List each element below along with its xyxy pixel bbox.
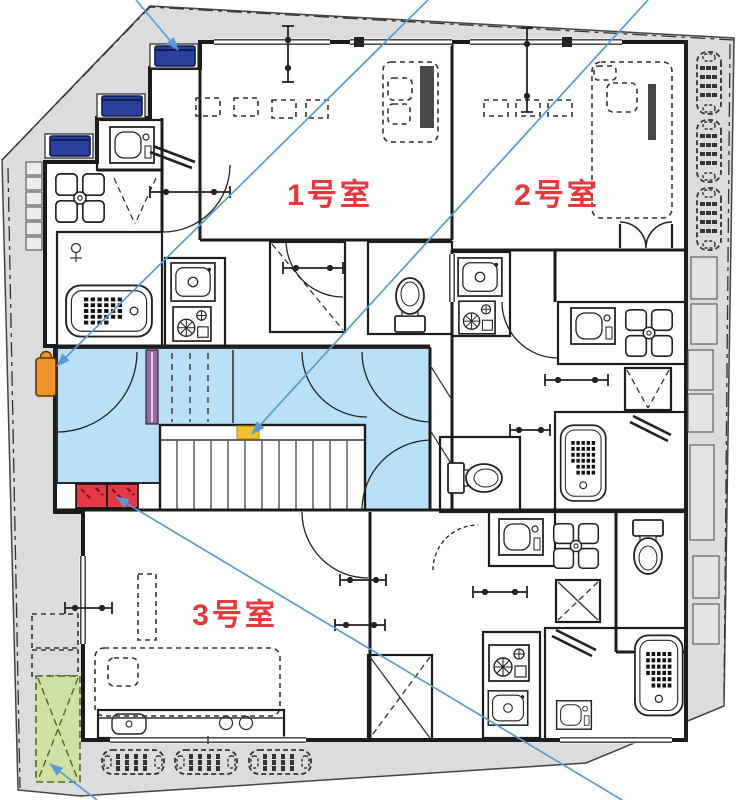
stair-marker bbox=[237, 426, 259, 439]
ac-unit bbox=[690, 445, 714, 540]
room-2-label: 2号室 bbox=[514, 178, 600, 212]
stove-icon bbox=[173, 307, 211, 341]
kitchen-sink-icon bbox=[171, 263, 215, 301]
ac-unit bbox=[691, 304, 717, 344]
floor-plan-figure: 1号室 2号室 3号室 bbox=[0, 0, 737, 800]
stove-icon bbox=[459, 301, 495, 334]
ac-unit bbox=[693, 556, 719, 598]
planting-area-green bbox=[36, 676, 80, 782]
room-1-label: 1号室 bbox=[287, 178, 373, 212]
toilet-icon bbox=[395, 278, 425, 332]
ac-unit bbox=[688, 350, 713, 390]
room-3-label: 3号室 bbox=[192, 598, 278, 632]
wall-post bbox=[562, 37, 572, 47]
toilet-icon bbox=[633, 520, 663, 574]
ac-unit bbox=[688, 394, 713, 432]
bathtub-icon bbox=[66, 285, 152, 336]
toilet-icon bbox=[448, 463, 502, 493]
ac-unit bbox=[693, 604, 719, 644]
vanity-basin-icon bbox=[110, 127, 154, 163]
sink-bowl-room3 bbox=[112, 714, 146, 734]
wall-post bbox=[354, 37, 364, 47]
bathtub-icon bbox=[561, 425, 606, 501]
vanity-basin-icon bbox=[557, 701, 592, 729]
entrance-box-red bbox=[76, 484, 107, 508]
vanity-basin-icon bbox=[571, 308, 615, 344]
wardrobe-room1 bbox=[420, 66, 434, 128]
vanity-basin-icon bbox=[499, 519, 543, 555]
kitchen-sink-icon bbox=[458, 258, 502, 296]
bathtub-icon bbox=[635, 635, 683, 715]
ac-unit bbox=[691, 257, 717, 299]
staircase bbox=[160, 425, 365, 510]
kitchen-sink-icon bbox=[488, 691, 527, 725]
water-heater-orange bbox=[36, 358, 56, 396]
sliding-door-room2 bbox=[648, 84, 656, 140]
stove-icon bbox=[489, 645, 529, 681]
entrance-box-red bbox=[107, 484, 138, 508]
